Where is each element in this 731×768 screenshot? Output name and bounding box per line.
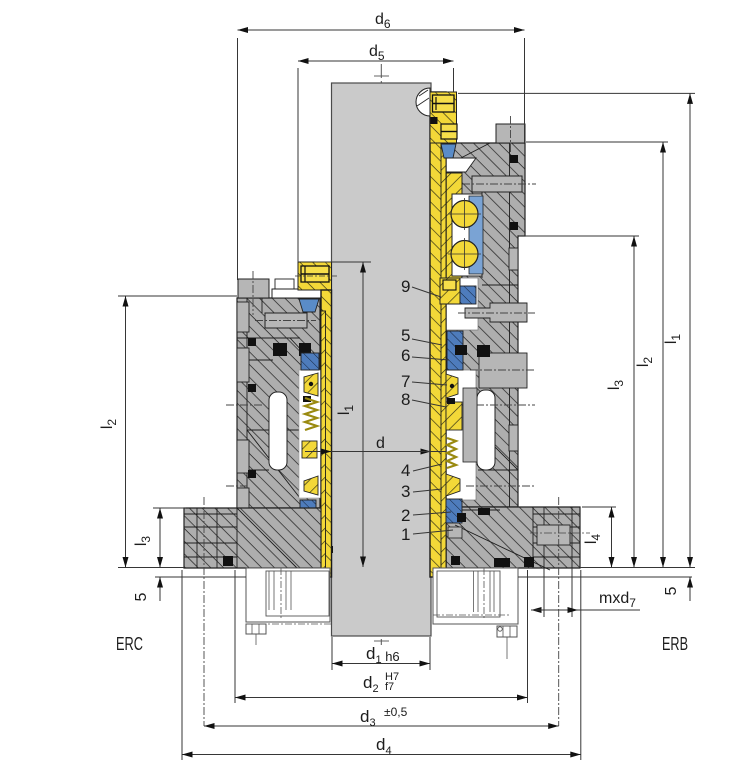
svg-text:f7: f7 — [385, 681, 394, 693]
svg-text:6: 6 — [401, 346, 410, 365]
svg-text:ERB: ERB — [662, 634, 688, 654]
svg-text:±0,5: ±0,5 — [384, 705, 408, 719]
svg-text:5: 5 — [133, 592, 150, 601]
svg-text:7: 7 — [401, 372, 410, 391]
svg-text:4: 4 — [401, 461, 410, 480]
svg-text:ERC: ERC — [116, 634, 143, 654]
svg-text:d: d — [376, 435, 385, 452]
svg-text:1: 1 — [401, 525, 410, 544]
svg-text:5: 5 — [401, 326, 410, 345]
svg-text:8: 8 — [401, 390, 410, 409]
svg-text:3: 3 — [401, 482, 410, 501]
svg-text:2: 2 — [401, 506, 410, 525]
svg-text:5: 5 — [663, 586, 680, 595]
svg-text:9: 9 — [401, 277, 410, 296]
